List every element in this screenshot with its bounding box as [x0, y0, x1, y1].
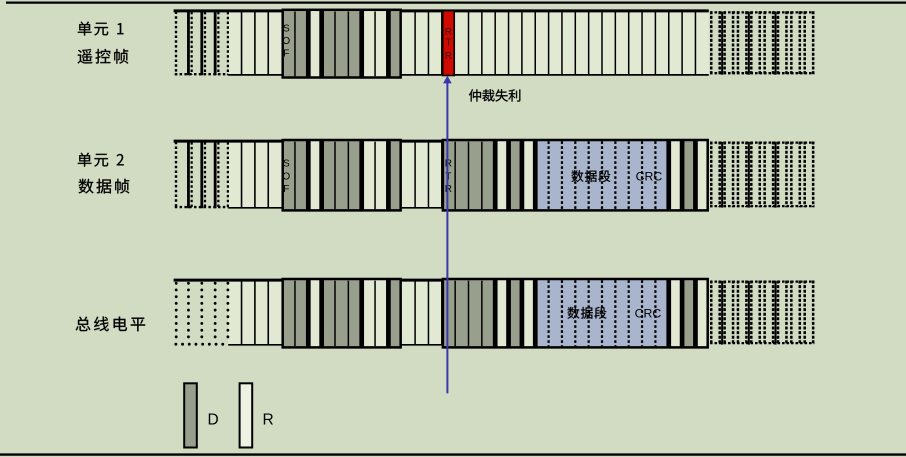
svg-text:CRC: CRC	[636, 170, 663, 184]
svg-text:F: F	[283, 49, 289, 60]
svg-text:S: S	[283, 23, 290, 34]
svg-text:T: T	[445, 38, 451, 49]
svg-text:F: F	[283, 184, 289, 195]
svg-text:R: R	[445, 51, 452, 62]
svg-text:R: R	[445, 27, 452, 38]
svg-text:CRC: CRC	[635, 307, 662, 321]
svg-text:O: O	[282, 171, 290, 182]
svg-text:S: S	[283, 159, 290, 170]
svg-text:O: O	[282, 36, 290, 47]
svg-text:R: R	[263, 412, 274, 429]
svg-text:D: D	[208, 412, 219, 429]
